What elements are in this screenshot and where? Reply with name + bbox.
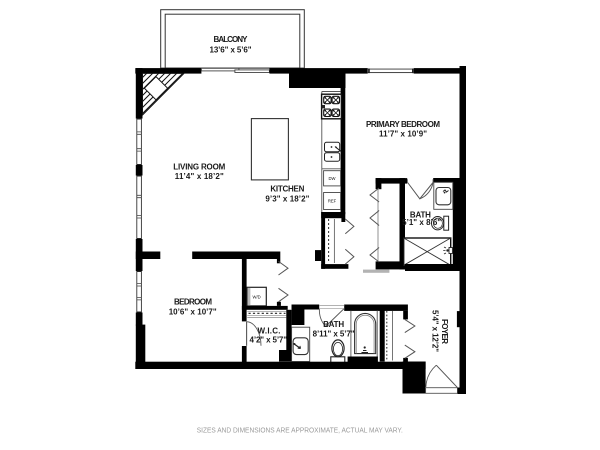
svg-text:BATH: BATH [323, 320, 344, 329]
svg-text:5’1" x 8’6": 5’1" x 8’6" [402, 218, 441, 227]
svg-text:LIVING ROOM: LIVING ROOM [173, 163, 225, 172]
svg-text:DW: DW [329, 176, 336, 181]
svg-text:REF: REF [328, 198, 337, 203]
svg-text:11’4" x 18’2": 11’4" x 18’2" [175, 172, 224, 181]
svg-text:SIZES AND DIMENSIONS ARE APPRO: SIZES AND DIMENSIONS ARE APPROXIMATE, AC… [197, 426, 403, 435]
svg-text:PRIMARY BEDROOM: PRIMARY BEDROOM [366, 120, 440, 129]
svg-text:BALCONY: BALCONY [214, 35, 249, 44]
svg-text:FOYER: FOYER [440, 319, 449, 344]
svg-text:9’3" x 18’2": 9’3" x 18’2" [265, 195, 309, 204]
svg-text:W/D: W/D [253, 294, 261, 299]
svg-text:13’6" x 5’6": 13’6" x 5’6" [210, 45, 252, 54]
svg-text:5’4" x 12’2": 5’4" x 12’2" [431, 310, 440, 352]
svg-text:11’7" x 10’9": 11’7" x 10’9" [379, 130, 427, 139]
svg-text:10’6" x 10’7": 10’6" x 10’7" [169, 307, 217, 316]
svg-text:4’2" x 5’7": 4’2" x 5’7" [250, 335, 288, 344]
svg-text:8’11" x 5’7": 8’11" x 5’7" [313, 329, 355, 338]
svg-text:BEDROOM: BEDROOM [174, 298, 212, 307]
svg-text:KITCHEN: KITCHEN [270, 185, 304, 194]
